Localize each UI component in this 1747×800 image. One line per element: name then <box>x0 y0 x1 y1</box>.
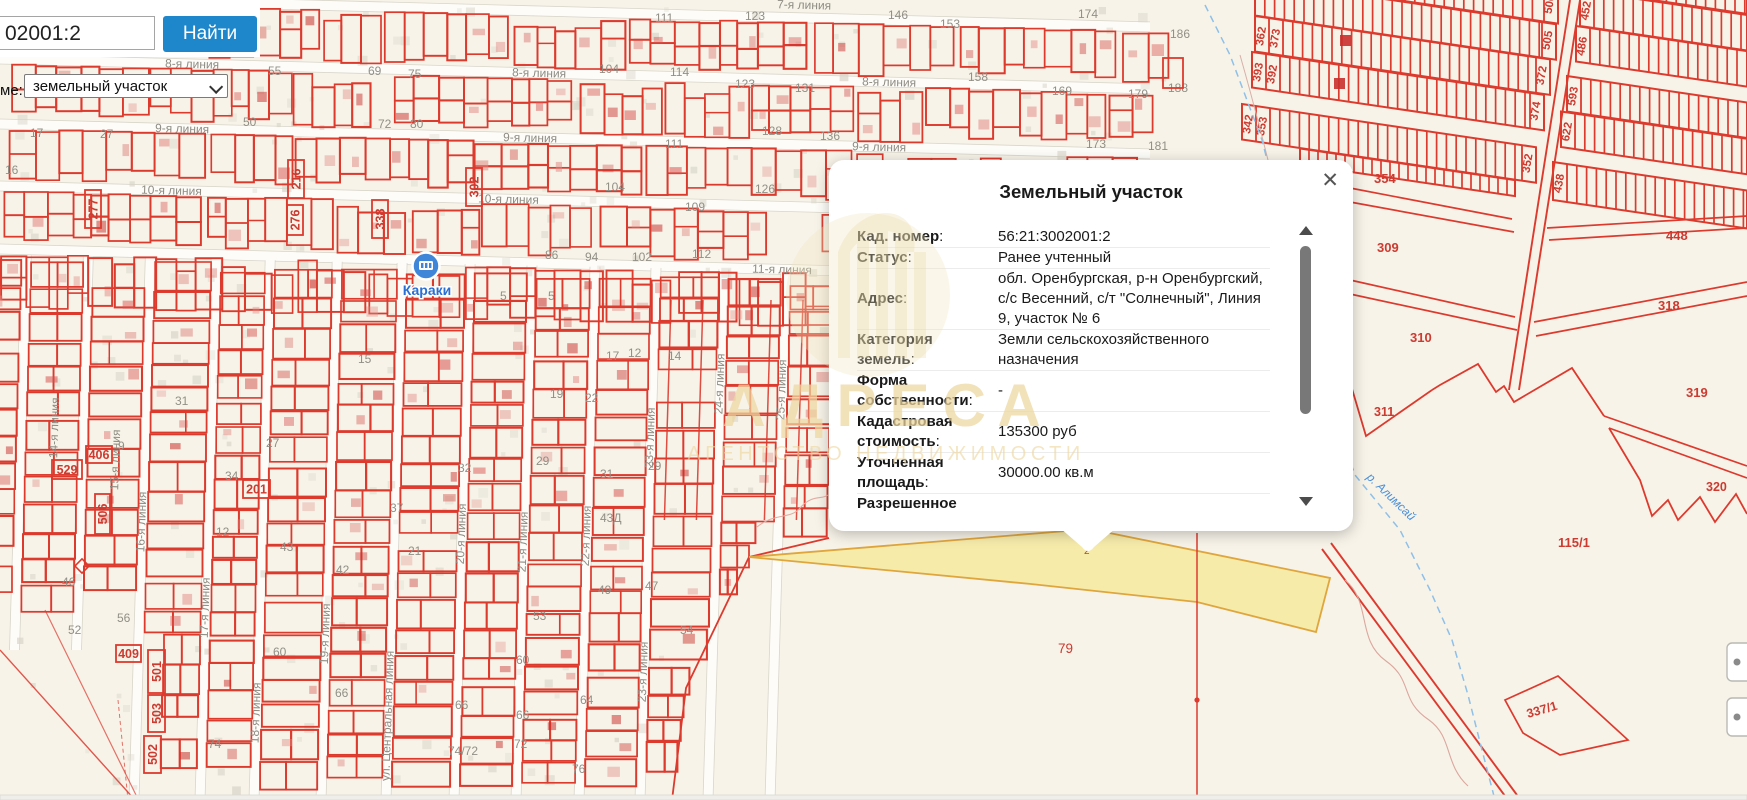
svg-text:173: 173 <box>1086 137 1106 151</box>
svg-text:18-я линия: 18-я линия <box>248 682 264 743</box>
svg-text:186: 186 <box>1170 27 1190 41</box>
svg-text:126: 126 <box>755 182 775 196</box>
svg-text:14-я линия: 14-я линия <box>46 397 62 458</box>
svg-text:8-я линия: 8-я линия <box>512 65 566 80</box>
svg-text:27: 27 <box>266 436 280 450</box>
svg-text:169: 169 <box>1052 84 1072 98</box>
svg-text:104: 104 <box>599 62 619 76</box>
svg-text:66: 66 <box>455 698 469 712</box>
svg-text:502: 502 <box>146 744 160 765</box>
svg-text:503: 503 <box>150 703 164 724</box>
svg-text:27: 27 <box>100 127 114 141</box>
svg-text:16-я линия: 16-я линия <box>133 491 149 552</box>
svg-text:86: 86 <box>545 248 559 262</box>
svg-text:15: 15 <box>358 352 372 366</box>
svg-text:72: 72 <box>514 737 528 751</box>
svg-text:11-я линия: 11-я линия <box>752 262 812 278</box>
svg-text:16: 16 <box>5 163 19 177</box>
svg-text:136: 136 <box>820 129 840 143</box>
svg-text:201: 201 <box>246 482 267 496</box>
svg-text:50: 50 <box>243 115 257 129</box>
svg-text:17: 17 <box>606 349 620 363</box>
svg-text:25-я линия: 25-я линия <box>773 359 789 420</box>
svg-text:319: 319 <box>1686 385 1708 400</box>
svg-text:112: 112 <box>692 247 711 261</box>
svg-text:60: 60 <box>273 645 287 659</box>
svg-text:17: 17 <box>30 126 44 140</box>
svg-text:14: 14 <box>668 349 682 363</box>
svg-text:104: 104 <box>605 180 625 194</box>
svg-text:5: 5 <box>548 289 555 303</box>
svg-text:216: 216 <box>289 169 303 190</box>
svg-text:102: 102 <box>632 250 652 264</box>
svg-text:529: 529 <box>57 463 78 477</box>
svg-text:66: 66 <box>516 708 530 722</box>
svg-text:181: 181 <box>1148 139 1168 153</box>
svg-text:123: 123 <box>735 77 755 91</box>
svg-text:406: 406 <box>89 448 110 462</box>
svg-text:34: 34 <box>225 469 239 483</box>
svg-text:9-я линия: 9-я линия <box>503 130 557 145</box>
svg-text:320: 320 <box>1706 480 1727 494</box>
svg-text:123: 123 <box>745 9 765 23</box>
svg-text:53: 53 <box>533 609 547 623</box>
svg-text:47: 47 <box>645 579 659 593</box>
svg-text:29: 29 <box>536 454 550 468</box>
svg-text:60: 60 <box>516 653 530 667</box>
svg-text:354: 354 <box>1374 171 1396 186</box>
svg-text:17-я линия: 17-я линия <box>197 577 213 638</box>
svg-text:277: 277 <box>86 199 100 220</box>
svg-text:338: 338 <box>373 209 387 230</box>
svg-text:94: 94 <box>585 250 599 264</box>
svg-text:448: 448 <box>1666 228 1688 243</box>
svg-text:32: 32 <box>458 461 472 475</box>
svg-text:66: 66 <box>335 686 349 700</box>
svg-text:131: 131 <box>795 81 815 95</box>
svg-text:8-я линия: 8-я линия <box>862 74 916 89</box>
svg-text:276: 276 <box>288 210 302 231</box>
svg-text:37: 37 <box>390 501 404 515</box>
svg-text:153: 153 <box>940 17 960 31</box>
svg-text:158: 158 <box>968 70 988 84</box>
svg-text:20-я линия: 20-я линия <box>453 503 469 564</box>
svg-text:302: 302 <box>467 177 481 198</box>
svg-text:9-я линия: 9-я линия <box>155 121 209 136</box>
svg-text:69: 69 <box>368 64 382 78</box>
svg-text:23-я линия: 23-я линия <box>635 641 651 702</box>
svg-text:24-я линия: 24-я линия <box>711 353 727 414</box>
svg-text:7-я линия: 7-я линия <box>777 0 831 13</box>
svg-text:74/72: 74/72 <box>448 744 478 758</box>
svg-text:29: 29 <box>648 459 662 473</box>
svg-text:46: 46 <box>62 575 76 589</box>
svg-text:12: 12 <box>628 346 642 360</box>
svg-text:21: 21 <box>408 544 422 558</box>
svg-text:75: 75 <box>408 67 422 81</box>
svg-text:56: 56 <box>117 611 131 625</box>
svg-text:309: 309 <box>1377 240 1399 255</box>
svg-text:79: 79 <box>1058 641 1073 656</box>
svg-text:54: 54 <box>680 623 694 637</box>
svg-text:Караки: Караки <box>403 282 451 298</box>
svg-text:55: 55 <box>268 64 282 78</box>
svg-text:43Д: 43Д <box>600 511 621 525</box>
svg-text:10-я линия: 10-я линия <box>141 183 202 199</box>
svg-text:114: 114 <box>670 65 689 79</box>
svg-text:74: 74 <box>208 737 222 751</box>
svg-text:31: 31 <box>175 394 189 408</box>
svg-text:318: 318 <box>1658 298 1680 313</box>
svg-text:109: 109 <box>685 200 705 214</box>
svg-text:72: 72 <box>378 117 392 131</box>
svg-text:409: 409 <box>118 647 139 661</box>
svg-text:76: 76 <box>572 762 586 776</box>
svg-text:310: 310 <box>1410 330 1432 345</box>
svg-text:9-я линия: 9-я линия <box>852 139 906 154</box>
svg-text:115/1: 115/1 <box>1558 535 1590 550</box>
svg-text:80: 80 <box>410 117 424 131</box>
svg-text:5: 5 <box>500 289 507 303</box>
svg-text:311: 311 <box>1374 405 1394 419</box>
svg-text:22-я линия: 22-я линия <box>578 505 594 566</box>
svg-text:8-я линия: 8-я линия <box>165 56 219 71</box>
svg-text:12: 12 <box>216 525 230 539</box>
svg-text:31: 31 <box>600 467 614 481</box>
svg-text:128: 128 <box>762 124 782 138</box>
svg-text:42: 42 <box>336 563 350 577</box>
svg-text:506: 506 <box>96 504 110 525</box>
svg-text:21-я линия: 21-я линия <box>515 511 531 572</box>
svg-text:49: 49 <box>598 583 612 597</box>
svg-text:111: 111 <box>665 137 684 151</box>
svg-text:179: 179 <box>1128 87 1148 101</box>
svg-text:10-я линия: 10-я линия <box>478 191 539 207</box>
svg-text:9: 9 <box>118 439 125 453</box>
svg-text:501: 501 <box>150 661 164 682</box>
svg-text:64: 64 <box>580 693 594 707</box>
svg-text:19: 19 <box>550 387 564 401</box>
svg-text:22: 22 <box>585 391 599 405</box>
svg-text:174: 174 <box>1078 7 1098 21</box>
svg-text:146: 146 <box>888 8 908 22</box>
svg-text:43: 43 <box>280 540 294 554</box>
svg-text:19-я линия: 19-я линия <box>317 603 333 664</box>
svg-text:52: 52 <box>68 623 82 637</box>
svg-text:111: 111 <box>655 11 674 25</box>
